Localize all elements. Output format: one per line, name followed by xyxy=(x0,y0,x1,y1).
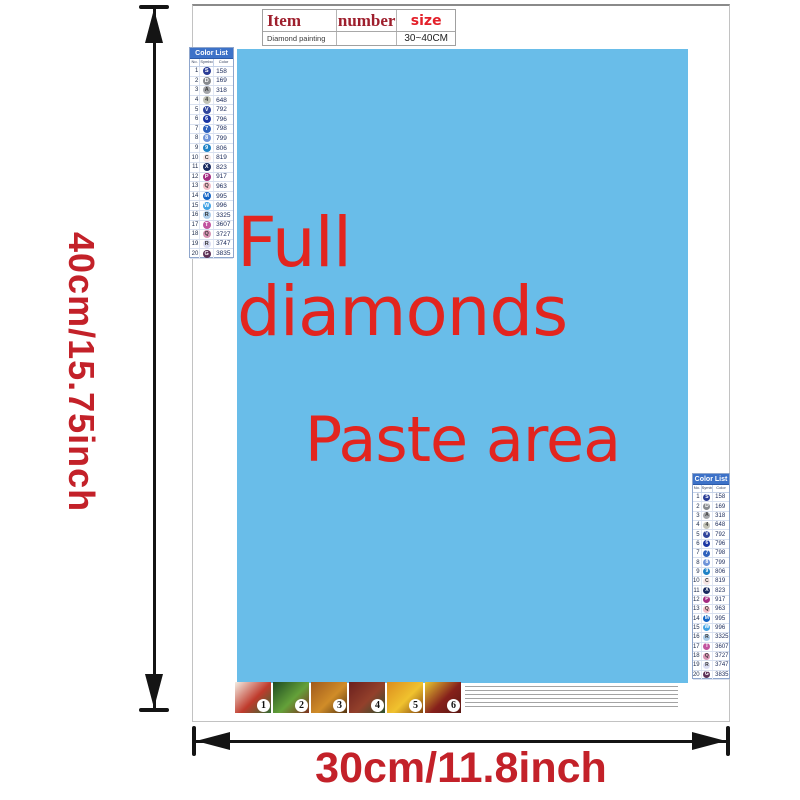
color-row-number: 5 xyxy=(693,530,702,538)
color-list-body: 1S1582D1693A318446485V792667967779888799… xyxy=(693,493,729,680)
color-swatch-dot: G xyxy=(203,250,211,258)
color-row-code: 917 xyxy=(214,173,233,180)
color-swatch-dot: 9 xyxy=(203,144,211,152)
color-row-code: 3325 xyxy=(214,212,233,219)
color-list-row: 18Q3727 xyxy=(693,652,729,661)
color-row-code: 318 xyxy=(713,513,729,519)
color-swatch-dot: Q xyxy=(203,182,211,190)
color-list-row: 88799 xyxy=(190,134,233,144)
color-row-symbol-cell: X xyxy=(200,163,214,172)
color-list-row: 20G3835 xyxy=(190,249,233,259)
arrow-end-cap xyxy=(139,708,169,712)
color-row-code: 798 xyxy=(713,550,729,556)
color-row-number: 3 xyxy=(693,512,702,520)
color-list-left: Color List No. Symbol Color 1S1582D1693A… xyxy=(189,47,234,258)
color-row-symbol-cell: W xyxy=(200,201,214,210)
color-swatch-dot: Q xyxy=(703,606,710,613)
color-row-number: 20 xyxy=(693,671,702,679)
item-table-value-row: Diamond painting 30~40CM xyxy=(263,32,455,45)
color-row-symbol-cell: S xyxy=(702,493,714,501)
instruction-step-images: 123456 xyxy=(235,682,461,713)
color-list-row: 17T3607 xyxy=(693,643,729,652)
color-row-code: 819 xyxy=(214,154,233,161)
color-row-symbol-cell: 7 xyxy=(702,549,714,557)
color-row-number: 4 xyxy=(190,96,200,105)
color-list-row: 99806 xyxy=(693,568,729,577)
color-list-row: 20G3835 xyxy=(693,671,729,680)
color-row-symbol-cell: W xyxy=(702,624,714,632)
height-dimension-arrow xyxy=(139,5,169,712)
color-row-symbol-cell: G xyxy=(200,249,214,258)
color-row-number: 6 xyxy=(190,115,200,124)
color-row-code: 996 xyxy=(214,202,233,209)
color-row-symbol-cell: 8 xyxy=(200,134,214,143)
step-image-tile: 6 xyxy=(425,682,461,713)
width-dimension-label: 30cm/11.8inch xyxy=(192,744,730,793)
color-swatch-dot: A xyxy=(703,512,710,519)
color-row-code: 796 xyxy=(713,541,729,547)
color-row-symbol-cell: C xyxy=(702,577,714,585)
color-row-number: 11 xyxy=(693,586,702,594)
color-row-code: 158 xyxy=(713,494,729,500)
arrow-shaft xyxy=(153,7,156,710)
color-row-symbol-cell: 9 xyxy=(702,568,714,576)
color-list-row: 12P917 xyxy=(693,596,729,605)
col-no: No. xyxy=(190,59,200,66)
color-row-number: 3 xyxy=(190,86,200,95)
color-list-title: Color List xyxy=(693,474,729,485)
color-swatch-dot: M xyxy=(203,192,211,200)
color-swatch-dot: S xyxy=(703,494,710,501)
color-row-number: 16 xyxy=(190,211,200,220)
color-row-symbol-cell: R xyxy=(200,240,214,249)
color-swatch-dot: C xyxy=(203,154,211,162)
color-row-code: 3727 xyxy=(713,653,729,659)
color-list-right: Color List No. Symbol Color 1S1582D1693A… xyxy=(692,473,730,679)
color-list-row: 15W996 xyxy=(693,624,729,633)
arrowhead-down-icon xyxy=(145,674,163,708)
color-row-code: 963 xyxy=(713,606,729,612)
color-row-symbol-cell: M xyxy=(200,192,214,201)
color-row-code: 799 xyxy=(713,560,729,566)
color-row-code: 3747 xyxy=(214,240,233,247)
color-swatch-dot: G xyxy=(703,671,710,678)
color-row-code: 995 xyxy=(713,616,729,622)
color-list-row: 16R3325 xyxy=(190,211,233,221)
color-list-row: 16R3325 xyxy=(693,633,729,642)
color-swatch-dot: 8 xyxy=(203,134,211,142)
paste-area-title-line1: Full diamonds xyxy=(237,209,688,347)
product-size-diagram: 40cm/15.75inch Item number size Diamond … xyxy=(0,0,800,800)
color-list-row: 17T3607 xyxy=(190,221,233,231)
color-list-row: 1S158 xyxy=(693,493,729,502)
color-row-number: 12 xyxy=(190,173,200,182)
color-swatch-dot: 4 xyxy=(203,96,211,104)
color-swatch-dot: 9 xyxy=(703,568,710,575)
color-row-symbol-cell: R xyxy=(200,211,214,220)
color-row-number: 7 xyxy=(693,549,702,557)
color-row-code: 648 xyxy=(713,522,729,528)
color-row-code: 798 xyxy=(214,125,233,132)
color-row-number: 6 xyxy=(693,540,702,548)
color-list-row: 66796 xyxy=(693,540,729,549)
color-swatch-dot: Q xyxy=(203,230,211,238)
paste-area-title-line2: Paste area xyxy=(305,409,620,471)
color-swatch-dot: T xyxy=(203,221,211,229)
color-swatch-dot: X xyxy=(703,587,710,594)
color-row-symbol-cell: D xyxy=(702,502,714,510)
color-swatch-dot: R xyxy=(703,662,710,669)
item-info-table: Item number size Diamond painting 30~40C… xyxy=(262,9,456,46)
step-number-badge: 2 xyxy=(295,699,308,712)
color-row-number: 4 xyxy=(693,521,702,529)
color-list-row: 77798 xyxy=(190,125,233,135)
color-row-number: 9 xyxy=(190,144,200,153)
color-list-row: 18Q3727 xyxy=(190,230,233,240)
color-row-number: 14 xyxy=(190,192,200,201)
step-image-tile: 2 xyxy=(273,682,309,713)
color-swatch-dot: Q xyxy=(703,653,710,660)
color-list-columns: No. Symbol Color xyxy=(190,59,233,67)
color-row-number: 14 xyxy=(693,614,702,622)
color-row-symbol-cell: T xyxy=(200,221,214,230)
color-row-code: 318 xyxy=(214,87,233,94)
color-row-number: 7 xyxy=(190,125,200,134)
color-row-symbol-cell: Q xyxy=(702,605,714,613)
color-row-number: 19 xyxy=(190,240,200,249)
color-row-symbol-cell: 4 xyxy=(200,96,214,105)
color-row-code: 806 xyxy=(713,569,729,575)
col-no: No. xyxy=(693,485,702,492)
color-list-title: Color List xyxy=(190,48,233,59)
color-row-code: 823 xyxy=(713,588,729,594)
color-row-symbol-cell: A xyxy=(200,86,214,95)
color-row-code: 3727 xyxy=(214,231,233,238)
color-swatch-dot: D xyxy=(203,77,211,85)
item-value: Diamond painting xyxy=(263,32,336,45)
color-list-row: 12P917 xyxy=(190,173,233,183)
color-swatch-dot: X xyxy=(203,163,211,171)
color-swatch-dot: W xyxy=(703,624,710,631)
color-list-row: 11X823 xyxy=(190,163,233,173)
size-header: size xyxy=(397,10,455,31)
paste-area: Full diamonds Paste area xyxy=(237,49,688,683)
color-row-code: 823 xyxy=(214,164,233,171)
arrow-shaft xyxy=(194,740,728,743)
color-list-row: 77798 xyxy=(693,549,729,558)
color-swatch-dot: R xyxy=(703,634,710,641)
color-list-row: 14M995 xyxy=(693,614,729,623)
color-row-number: 1 xyxy=(693,493,702,501)
color-row-symbol-cell: Q xyxy=(200,230,214,239)
color-row-symbol-cell: R xyxy=(702,633,714,641)
color-row-symbol-cell: C xyxy=(200,153,214,162)
color-list-row: 88799 xyxy=(693,558,729,567)
color-row-code: 792 xyxy=(713,532,729,538)
color-row-number: 8 xyxy=(693,558,702,566)
color-list-row: 44648 xyxy=(693,521,729,530)
color-swatch-dot: D xyxy=(703,503,710,510)
color-row-code: 799 xyxy=(214,135,233,142)
color-row-symbol-cell: T xyxy=(702,643,714,651)
color-row-symbol-cell: S xyxy=(200,67,214,76)
color-row-number: 11 xyxy=(190,163,200,172)
step-number-badge: 1 xyxy=(257,699,270,712)
color-row-number: 13 xyxy=(190,182,200,191)
color-list-columns: No. Symbol Color xyxy=(693,485,729,493)
color-swatch-dot: C xyxy=(703,578,710,585)
color-row-symbol-cell: 4 xyxy=(702,521,714,529)
step-image-tile: 3 xyxy=(311,682,347,713)
color-list-row: 66796 xyxy=(190,115,233,125)
color-row-code: 3607 xyxy=(713,644,729,650)
color-row-code: 648 xyxy=(214,97,233,104)
step-image-tile: 4 xyxy=(349,682,385,713)
color-row-symbol-cell: A xyxy=(702,512,714,520)
color-swatch-dot: 7 xyxy=(703,550,710,557)
color-row-code: 796 xyxy=(214,116,233,123)
color-swatch-dot: 4 xyxy=(703,522,710,529)
color-row-number: 13 xyxy=(693,605,702,613)
color-row-number: 1 xyxy=(190,67,200,76)
color-row-code: 819 xyxy=(713,578,729,584)
step-number-badge: 3 xyxy=(333,699,346,712)
step-image-tile: 5 xyxy=(387,682,423,713)
color-list-row: 19R3747 xyxy=(693,661,729,670)
color-list-row: 13Q963 xyxy=(693,605,729,614)
color-row-symbol-cell: G xyxy=(702,671,714,679)
color-row-code: 3747 xyxy=(713,662,729,668)
color-row-number: 15 xyxy=(693,624,702,632)
color-row-number: 9 xyxy=(693,568,702,576)
color-row-symbol-cell: 6 xyxy=(200,115,214,124)
color-swatch-dot: R xyxy=(203,211,211,219)
color-row-number: 10 xyxy=(190,153,200,162)
color-row-code: 996 xyxy=(713,625,729,631)
color-list-row: 99806 xyxy=(190,144,233,154)
color-list-row: 14M995 xyxy=(190,192,233,202)
color-row-code: 169 xyxy=(713,504,729,510)
color-row-code: 3835 xyxy=(713,672,729,678)
color-row-number: 2 xyxy=(190,77,200,86)
color-swatch-dot: 6 xyxy=(703,540,710,547)
color-swatch-dot: V xyxy=(203,106,211,114)
size-value: 30~40CM xyxy=(397,32,455,45)
col-color: Color xyxy=(214,59,233,66)
instruction-fine-print xyxy=(465,686,696,709)
color-swatch-dot: P xyxy=(203,173,211,181)
color-row-code: 917 xyxy=(713,597,729,603)
color-swatch-dot: S xyxy=(203,67,211,75)
color-row-number: 18 xyxy=(190,230,200,239)
col-symbol: Symbol xyxy=(702,485,714,492)
color-list-row: 11X823 xyxy=(693,586,729,595)
number-header: number xyxy=(336,10,397,31)
color-swatch-dot: V xyxy=(703,531,710,538)
number-value xyxy=(336,32,397,45)
color-row-code: 995 xyxy=(214,193,233,200)
color-row-number: 18 xyxy=(693,652,702,660)
color-list-row: 5V792 xyxy=(190,105,233,115)
color-row-symbol-cell: 8 xyxy=(702,558,714,566)
color-list-row: 15W996 xyxy=(190,201,233,211)
step-number-badge: 6 xyxy=(447,699,460,712)
color-list-row: 1S158 xyxy=(190,67,233,77)
color-row-symbol-cell: 9 xyxy=(200,144,214,153)
color-row-code: 169 xyxy=(214,77,233,84)
color-list-row: 3A318 xyxy=(693,512,729,521)
color-row-symbol-cell: P xyxy=(702,596,714,604)
color-list-row: 2D169 xyxy=(693,502,729,511)
color-list-row: 2D169 xyxy=(190,77,233,87)
height-dimension-label: 40cm/15.75inch xyxy=(56,205,106,540)
color-row-number: 12 xyxy=(693,596,702,604)
color-row-symbol-cell: 6 xyxy=(702,540,714,548)
color-row-code: 3325 xyxy=(713,634,729,640)
color-list-row: 10C819 xyxy=(693,577,729,586)
color-row-code: 158 xyxy=(214,68,233,75)
color-swatch-dot: M xyxy=(703,615,710,622)
color-row-number: 10 xyxy=(693,577,702,585)
item-table-header-row: Item number size xyxy=(263,10,455,32)
canvas-poster: Item number size Diamond painting 30~40C… xyxy=(192,4,730,722)
color-list-row: 5V792 xyxy=(693,530,729,539)
item-header: Item xyxy=(263,10,336,31)
color-row-symbol-cell: Q xyxy=(702,652,714,660)
color-row-number: 8 xyxy=(190,134,200,143)
color-row-number: 19 xyxy=(693,661,702,669)
color-row-symbol-cell: X xyxy=(702,586,714,594)
color-swatch-dot: 6 xyxy=(203,115,211,123)
color-swatch-dot: W xyxy=(203,202,211,210)
color-row-code: 806 xyxy=(214,145,233,152)
color-row-symbol-cell: 7 xyxy=(200,125,214,134)
col-symbol: Symbol xyxy=(200,59,214,66)
color-swatch-dot: P xyxy=(703,596,710,603)
step-number-badge: 5 xyxy=(409,699,422,712)
col-color: Color xyxy=(713,485,729,492)
color-row-symbol-cell: M xyxy=(702,614,714,622)
color-swatch-dot: 7 xyxy=(203,125,211,133)
color-row-number: 17 xyxy=(693,643,702,651)
color-list-row: 10C819 xyxy=(190,153,233,163)
color-swatch-dot: R xyxy=(203,240,211,248)
color-row-symbol-cell: R xyxy=(702,661,714,669)
color-row-number: 17 xyxy=(190,221,200,230)
color-list-row: 19R3747 xyxy=(190,240,233,250)
color-list-row: 13Q963 xyxy=(190,182,233,192)
color-list-row: 3A318 xyxy=(190,86,233,96)
color-row-code: 792 xyxy=(214,106,233,113)
color-row-number: 2 xyxy=(693,502,702,510)
color-row-code: 3835 xyxy=(214,250,233,257)
color-row-number: 15 xyxy=(190,201,200,210)
color-row-symbol-cell: V xyxy=(200,105,214,114)
color-swatch-dot: T xyxy=(703,643,710,650)
color-row-number: 20 xyxy=(190,249,200,258)
step-image-tile: 1 xyxy=(235,682,271,713)
color-list-row: 44648 xyxy=(190,96,233,106)
arrowhead-up-icon xyxy=(145,9,163,43)
color-row-symbol-cell: D xyxy=(200,77,214,86)
color-row-symbol-cell: P xyxy=(200,173,214,182)
color-swatch-dot: 8 xyxy=(703,559,710,566)
color-swatch-dot: A xyxy=(203,86,211,94)
color-row-symbol-cell: V xyxy=(702,530,714,538)
color-row-number: 5 xyxy=(190,105,200,114)
color-row-number: 16 xyxy=(693,633,702,641)
color-row-symbol-cell: Q xyxy=(200,182,214,191)
color-row-code: 963 xyxy=(214,183,233,190)
color-list-body: 1S1582D1693A318446485V792667967779888799… xyxy=(190,67,233,259)
color-row-code: 3607 xyxy=(214,221,233,228)
step-number-badge: 4 xyxy=(371,699,384,712)
